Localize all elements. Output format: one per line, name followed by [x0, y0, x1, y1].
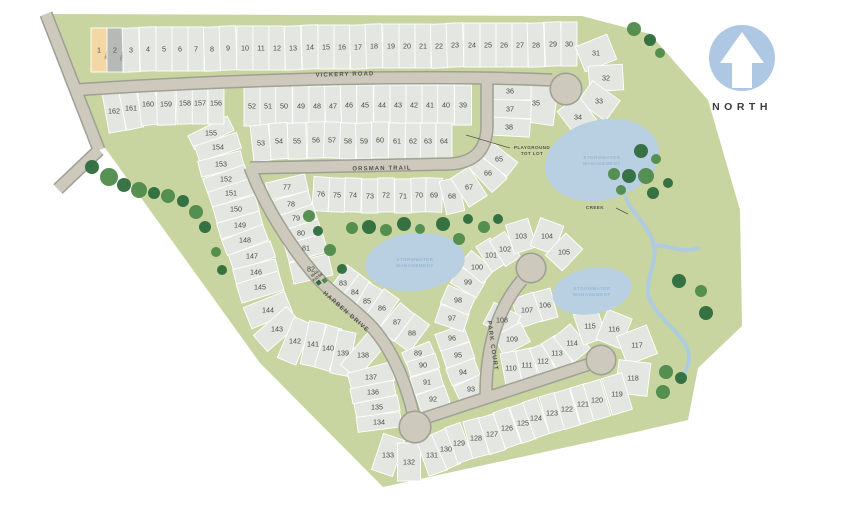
lot-54-number: 54	[275, 137, 283, 146]
lot-39-number: 39	[459, 101, 467, 110]
tree-icon	[478, 221, 490, 233]
lot-146-number: 146	[250, 268, 262, 277]
lot-28-number: 28	[532, 41, 540, 50]
creek-label: CREEK	[586, 205, 604, 210]
lot-61-number: 61	[393, 137, 401, 146]
lot-156-number: 156	[210, 99, 222, 108]
tree-icon	[616, 185, 626, 195]
lot-148-number: 148	[239, 236, 251, 245]
cul-de-sac-3	[587, 346, 615, 374]
tree-icon	[131, 182, 147, 198]
lot-21-number: 21	[419, 42, 427, 51]
lot-87-number: 87	[393, 318, 401, 327]
lot-93-number: 93	[467, 385, 475, 394]
lot-55-number: 55	[293, 137, 301, 146]
lot-152-number: 152	[220, 175, 232, 184]
lot-30-number: 30	[565, 40, 573, 49]
north-arrow: NORTH	[709, 25, 775, 113]
lot-65-number: 65	[495, 155, 503, 164]
lot-25-number: 25	[484, 41, 492, 50]
lot-34-number: 34	[574, 113, 582, 122]
lot-4-number: 4	[146, 45, 150, 54]
tree-icon	[663, 178, 673, 188]
lot-108-number: 108	[496, 316, 508, 325]
cul-de-sac-1	[551, 74, 581, 104]
lot-58-number: 58	[344, 137, 352, 146]
lot-15-number: 15	[322, 43, 330, 52]
lot-2-number: 2	[113, 46, 117, 55]
lot-46-number: 46	[345, 101, 353, 110]
lot-139-number: 139	[337, 349, 349, 358]
tree-icon	[695, 285, 707, 297]
lot-67-number: 67	[465, 183, 473, 192]
tree-icon	[177, 195, 189, 207]
lot-88-number: 88	[408, 329, 416, 338]
tree-icon	[199, 221, 211, 233]
lot-11-number: 11	[257, 44, 264, 53]
lot-101-number: 101	[485, 251, 497, 260]
lot-75-number: 75	[333, 191, 341, 200]
lot-80-number: 80	[297, 229, 305, 238]
tree-icon	[346, 222, 358, 234]
lot-100-number: 100	[471, 263, 483, 272]
lot-14-number: 14	[306, 43, 314, 52]
lot-102-number: 102	[499, 245, 511, 254]
lot-97-number: 97	[448, 314, 456, 323]
lot-119-number: 119	[611, 390, 622, 399]
road-label-orsman: ORSMAN TRAIL	[352, 165, 411, 172]
lot-45-number: 45	[361, 101, 369, 110]
lot-124-number: 124	[530, 414, 542, 423]
lot-71-number: 71	[399, 192, 407, 201]
lot-3-number: 3	[129, 46, 133, 55]
lot-72-number: 72	[382, 191, 390, 200]
lot-79-number: 79	[292, 214, 300, 223]
tree-icon	[647, 187, 659, 199]
north-label: NORTH	[712, 101, 772, 113]
lot-63-number: 63	[424, 137, 432, 146]
stormwater-label: MANAGEMENT	[573, 292, 610, 297]
lot-40-number: 40	[442, 101, 450, 110]
lot-137-number: 137	[365, 373, 377, 382]
lot-49-number: 49	[297, 102, 305, 111]
lot-160-number: 160	[142, 100, 154, 109]
lot-29-number: 29	[549, 40, 557, 49]
cul-de-sac-4	[400, 412, 430, 442]
lot-44-number: 44	[378, 101, 386, 110]
tree-icon	[672, 274, 686, 288]
lot-111-number: 111	[522, 361, 533, 370]
lot-84-number: 84	[351, 288, 359, 297]
lot-76-number: 76	[317, 190, 325, 199]
lot-51-number: 51	[264, 102, 272, 111]
lot-107-number: 107	[521, 306, 533, 315]
lot-77-number: 77	[283, 183, 291, 192]
lot-35-number: 35	[532, 99, 540, 108]
lot-151-number: 151	[225, 189, 237, 198]
stormwater-label: MANAGEMENT	[396, 263, 433, 268]
lot-130-number: 130	[440, 445, 452, 454]
lot-147-number: 147	[246, 252, 258, 261]
lot-92-number: 92	[429, 395, 437, 404]
site-plan-map: MODELPENDINGSTORMWATERMANAGEMENTSTORMWAT…	[0, 0, 848, 507]
lot-20-number: 20	[403, 42, 411, 51]
lot-48-number: 48	[313, 102, 321, 111]
tree-icon	[493, 214, 503, 224]
lot-113-number: 113	[551, 349, 562, 358]
tree-icon	[100, 168, 118, 186]
tree-icon	[463, 214, 473, 224]
lot-53-number: 53	[257, 139, 265, 148]
lot-64-number: 64	[440, 137, 448, 146]
lot-19-number: 19	[387, 42, 395, 51]
lot-62-number: 62	[409, 137, 417, 146]
tree-icon	[313, 226, 323, 236]
lot-42-number: 42	[410, 101, 418, 110]
lot-37-number: 37	[506, 105, 514, 114]
tree-icon	[380, 224, 392, 236]
lot-91-number: 91	[423, 378, 431, 387]
lot-112-number: 112	[537, 357, 548, 366]
lot-52-number: 52	[248, 102, 256, 111]
tree-icon	[656, 385, 670, 399]
tree-icon	[189, 205, 203, 219]
cul-de-sac-2	[517, 254, 545, 282]
lot-13-number: 13	[289, 44, 297, 53]
lot-36-number: 36	[506, 87, 514, 96]
tree-icon	[638, 168, 654, 184]
tree-icon	[436, 217, 450, 231]
lot-144-number: 144	[262, 306, 274, 315]
lot-99-number: 99	[464, 278, 472, 287]
lot-98-number: 98	[454, 296, 462, 305]
tree-icon	[337, 264, 347, 274]
lot-10-number: 10	[241, 44, 249, 53]
lot-157-number: 157	[194, 99, 206, 108]
lot-136-number: 136	[367, 388, 379, 397]
lot-115-number: 115	[584, 322, 595, 331]
lot-141-number: 141	[307, 340, 319, 349]
lot-57-number: 57	[328, 136, 336, 145]
lot-59-number: 59	[360, 137, 368, 146]
tree-icon	[85, 160, 99, 174]
lot-105-number: 105	[558, 248, 570, 257]
tree-icon	[324, 244, 336, 256]
lot-149-number: 149	[234, 221, 246, 230]
lot-38-number: 38	[505, 123, 513, 132]
lot-103-number: 103	[515, 232, 527, 241]
tree-icon	[675, 372, 687, 384]
lot-106-number: 106	[539, 301, 551, 310]
lot-104-number: 104	[541, 232, 553, 241]
lot-73-number: 73	[366, 192, 374, 201]
lot-142-number: 142	[289, 337, 301, 346]
lot-89-number: 89	[414, 349, 422, 358]
lot-132-number: 132	[403, 458, 415, 467]
tree-icon	[453, 233, 465, 245]
tree-icon	[303, 210, 315, 222]
lot-138-number: 138	[357, 351, 369, 360]
lot-158-number: 158	[179, 99, 191, 108]
lot-110-number: 110	[505, 364, 516, 373]
stormwater-label: STORMWATER	[573, 286, 610, 291]
lot-122-number: 122	[561, 405, 573, 414]
lot-33-number: 33	[595, 97, 603, 106]
lot-7-number: 7	[194, 45, 198, 54]
stormwater-label: STORMWATER	[583, 155, 620, 160]
lot-155-number: 155	[205, 129, 217, 138]
lot-31-number: 31	[592, 49, 600, 58]
lot-83-number: 83	[339, 279, 347, 288]
lot-17-number: 17	[354, 43, 362, 52]
tree-icon	[117, 178, 131, 192]
lot-23-number: 23	[451, 41, 459, 50]
lot-66-number: 66	[484, 169, 492, 178]
lot-32-number: 32	[602, 74, 610, 83]
lot-81-number: 81	[302, 244, 310, 253]
lot-121-number: 121	[577, 400, 589, 409]
lot-24-number: 24	[468, 41, 476, 50]
lot-74-number: 74	[349, 191, 357, 200]
tree-icon	[397, 217, 411, 231]
lot-85-number: 85	[363, 297, 371, 306]
lot-12-number: 12	[273, 44, 281, 53]
lot-120-number: 120	[591, 396, 603, 405]
lot-94-number: 94	[459, 368, 467, 377]
tree-icon	[655, 48, 665, 58]
lot-114-number: 114	[566, 339, 577, 348]
tree-icon	[644, 34, 656, 46]
tree-icon	[622, 169, 636, 183]
lot-8-number: 8	[210, 45, 214, 54]
tree-icon	[415, 224, 425, 234]
lot-41-number: 41	[426, 101, 434, 110]
lot-50-number: 50	[280, 102, 288, 111]
tree-icon	[651, 154, 661, 164]
lot-143-number: 143	[271, 325, 283, 334]
lot-126-number: 126	[501, 424, 513, 433]
lot-70-number: 70	[415, 191, 423, 200]
lot-5-number: 5	[162, 45, 166, 54]
lot-161-number: 161	[125, 104, 137, 113]
lot-129-number: 129	[453, 439, 465, 448]
playground-label: TOT LOT	[521, 151, 543, 156]
tree-icon	[148, 187, 160, 199]
tree-icon	[608, 168, 620, 180]
lot-27-number: 27	[516, 41, 524, 50]
lot-78-number: 78	[287, 200, 295, 209]
lot-162-number: 162	[108, 107, 120, 116]
lot-56-number: 56	[312, 136, 320, 145]
stormwater-label: MANAGEMENT	[583, 161, 620, 166]
lot-60-number: 60	[376, 136, 384, 145]
tree-icon	[634, 144, 648, 158]
lot-133-number: 133	[382, 451, 394, 460]
lot-9-number: 9	[226, 44, 230, 53]
lot-153-number: 153	[215, 160, 227, 169]
lot-118-number: 118	[627, 374, 638, 383]
lot-6-number: 6	[178, 45, 182, 54]
lot-131-number: 131	[426, 451, 438, 460]
lot-116-number: 116	[608, 325, 619, 334]
tree-icon	[362, 220, 376, 234]
lot-128-number: 128	[470, 434, 482, 443]
tree-icon	[211, 247, 221, 257]
lot-135-number: 135	[371, 403, 383, 412]
lot-16-number: 16	[338, 43, 346, 52]
lot-134-number: 134	[373, 418, 385, 427]
lot-90-number: 90	[419, 361, 427, 370]
lot-150-number: 150	[230, 205, 242, 214]
lot-123-number: 123	[546, 409, 558, 418]
lot-68-number: 68	[448, 192, 456, 201]
lot-26-number: 26	[500, 41, 508, 50]
tree-icon	[699, 306, 713, 320]
tree-icon	[161, 189, 175, 203]
lot-43-number: 43	[394, 101, 402, 110]
lot-95-number: 95	[454, 351, 462, 360]
lot-154-number: 154	[212, 143, 224, 152]
lot-69-number: 69	[430, 191, 438, 200]
stormwater-label: STORMWATER	[396, 257, 433, 262]
lot-159-number: 159	[160, 100, 172, 109]
lot-96-number: 96	[448, 334, 456, 343]
lot-145-number: 145	[254, 283, 266, 292]
lot-47-number: 47	[329, 102, 337, 111]
lot-140-number: 140	[322, 344, 334, 353]
lot-22-number: 22	[435, 42, 443, 51]
tree-icon	[627, 22, 641, 36]
playground-label: PLAYGROUND	[514, 145, 551, 150]
lot-117-number: 117	[631, 341, 642, 350]
lot-1-number: 1	[97, 46, 101, 55]
tree-icon	[217, 265, 227, 275]
lot-127-number: 127	[486, 430, 498, 439]
lot-109-number: 109	[506, 335, 518, 344]
lot-125-number: 125	[517, 419, 529, 428]
lot-86-number: 86	[378, 304, 386, 313]
lot-18-number: 18	[370, 42, 378, 51]
site-plan-page: MODELPENDINGSTORMWATERMANAGEMENTSTORMWAT…	[0, 0, 848, 507]
tree-icon	[659, 365, 673, 379]
